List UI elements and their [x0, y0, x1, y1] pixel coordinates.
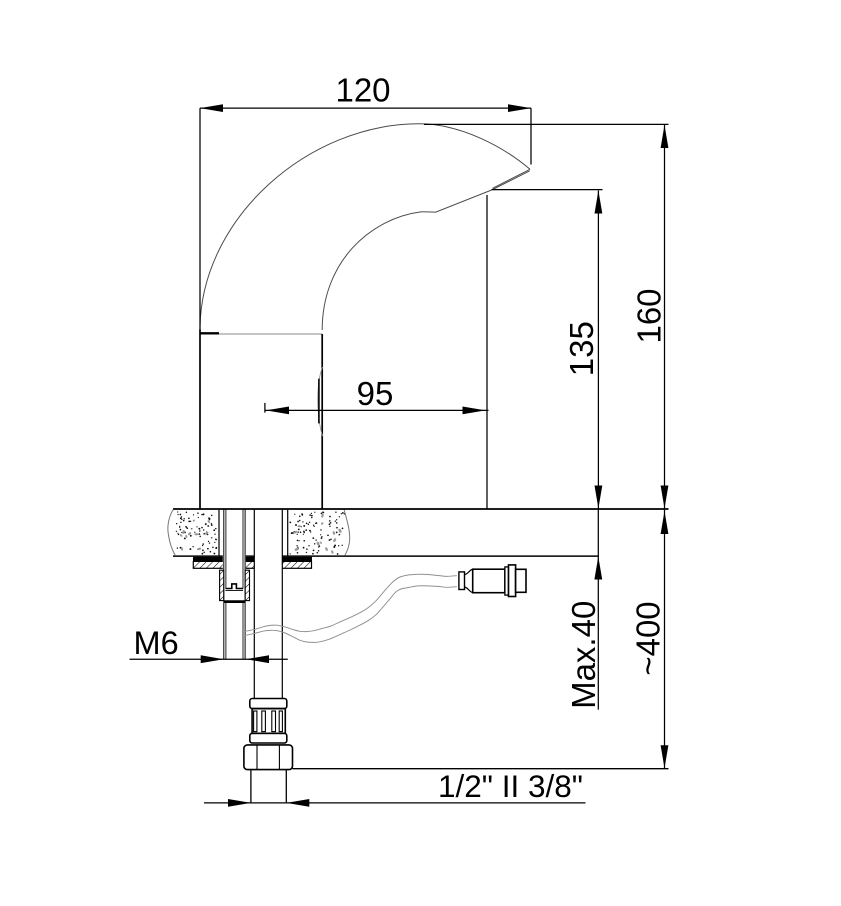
svg-text:95: 95 — [357, 375, 394, 412]
svg-text:120: 120 — [335, 72, 390, 109]
svg-text:160: 160 — [631, 288, 668, 343]
svg-text:Max.40: Max.40 — [565, 601, 602, 709]
svg-text:1/2" II 3/8": 1/2" II 3/8" — [438, 768, 583, 804]
svg-text:~400: ~400 — [629, 601, 666, 675]
svg-text:M6: M6 — [134, 625, 179, 661]
svg-text:135: 135 — [563, 321, 600, 376]
